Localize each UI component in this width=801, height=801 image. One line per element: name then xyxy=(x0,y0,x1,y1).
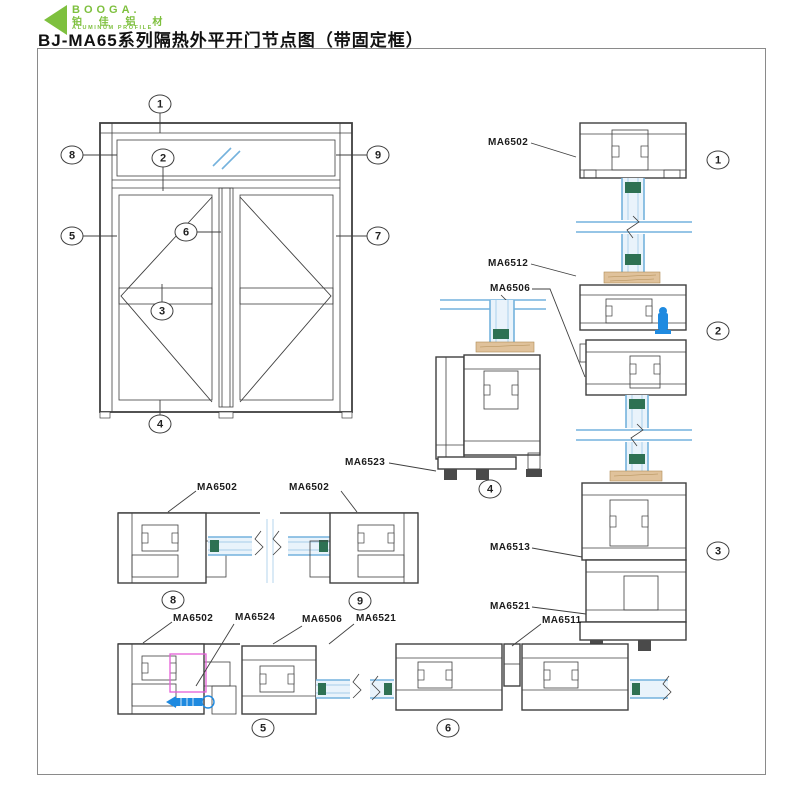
sec6-left-leaf-profile xyxy=(396,644,502,710)
section-mark-4: 4 xyxy=(479,480,502,499)
sec4-leaf-bottom-rail-profile xyxy=(464,355,540,455)
glazing-gasket xyxy=(632,683,640,695)
sec5-glass xyxy=(316,674,361,702)
elevation-callout-7: 7 xyxy=(367,227,390,246)
sec6-astragal-profile xyxy=(504,644,520,686)
part-label-sec3-mid-rail: MA6513 xyxy=(490,542,530,553)
sec3-setting-block xyxy=(610,471,662,481)
part-label-sec1-frame: MA6502 xyxy=(488,137,528,148)
sec3-mid-rail-profile xyxy=(582,483,686,560)
section-mark-1: 1 xyxy=(707,151,730,170)
part-label-sec6-astragal: MA6511 xyxy=(542,615,582,626)
sec89-center-break xyxy=(267,519,273,583)
part-label-sec5-frame: MA6502 xyxy=(173,613,213,624)
sec1-frame-head-profile xyxy=(580,123,686,178)
sec2-transom-rail-profile xyxy=(580,285,686,330)
sec5-leaf-corner-profile xyxy=(204,662,236,714)
glazing-gasket xyxy=(493,329,509,339)
sec6-glass-right xyxy=(630,676,671,700)
vertical-section-strip xyxy=(576,118,692,664)
elevation-callout-1: 1 xyxy=(149,95,172,114)
part-label-sec8-frame: MA6502 xyxy=(197,482,237,493)
elevation-callout-3: 3 xyxy=(151,302,174,321)
sec6-glass-left xyxy=(370,676,394,700)
sec9-glass xyxy=(273,531,330,559)
part-label-sec5-leaf: MA6521 xyxy=(356,613,396,624)
section-mark-5: 5 xyxy=(252,719,275,738)
part-label-sec3-leaf-bottom: MA6521 xyxy=(490,601,530,612)
elevation-callout-9: 9 xyxy=(367,146,390,165)
part-label-sec2-glazing-bead: MA6512 xyxy=(488,258,528,269)
drawing-sheet: BOOGA. 铂 佳 铝 材 ALUMINUM PROFILE BJ-MA65系… xyxy=(0,0,801,801)
elevation-callout-2: 2 xyxy=(152,149,175,168)
glazing-gasket xyxy=(629,399,645,409)
sec2-setting-block xyxy=(604,272,660,283)
part-label-sec2-adapter: MA6506 xyxy=(490,283,530,294)
sec4-threshold-profile xyxy=(438,453,542,480)
glazing-gasket xyxy=(629,454,645,464)
sec3-leaf-bottom-rail-profile xyxy=(586,560,686,622)
section-5-detail-drawing xyxy=(112,636,360,720)
sec8-glass xyxy=(208,531,264,559)
sec5-leaf-profile xyxy=(242,646,316,714)
section-6-detail-drawing xyxy=(368,632,700,716)
part-label-sec5-adapter: MA6506 xyxy=(302,614,342,625)
section-8-9-detail-drawing xyxy=(112,505,424,593)
sec4-setting-block xyxy=(476,342,534,352)
elevation-callout-8: 8 xyxy=(61,146,84,165)
sec4-glass xyxy=(490,300,514,342)
section-mark-9: 9 xyxy=(349,592,372,611)
part-label-sec5-corner-joint: MA6524 xyxy=(235,612,275,623)
sec4-sill-frame-profile xyxy=(436,357,464,459)
section-mark-6: 6 xyxy=(437,719,460,738)
section-mark-3: 3 xyxy=(707,542,730,561)
glazing-gasket xyxy=(625,182,641,193)
part-label-sec9-frame: MA6502 xyxy=(289,482,329,493)
glazing-gasket xyxy=(318,683,326,695)
sec6-right-leaf-profile xyxy=(522,644,628,710)
elevation-callout-4: 4 xyxy=(149,415,172,434)
section-4-detail-drawing xyxy=(432,295,550,491)
elevation-outer-frame xyxy=(100,123,352,418)
glazing-gasket xyxy=(210,540,219,552)
glazing-gasket xyxy=(319,540,328,552)
glazing-gasket xyxy=(384,683,392,695)
elevation-callout-6: 6 xyxy=(175,223,198,242)
section-mark-8: 8 xyxy=(162,591,185,610)
door-elevation-drawing xyxy=(95,118,365,423)
sec2-leaf-top-rail-profile xyxy=(580,340,686,395)
elevation-callout-5: 5 xyxy=(61,227,84,246)
part-label-sec4-threshold: MA6523 xyxy=(345,457,385,468)
glazing-gasket xyxy=(625,254,641,265)
section-mark-2: 2 xyxy=(707,322,730,341)
